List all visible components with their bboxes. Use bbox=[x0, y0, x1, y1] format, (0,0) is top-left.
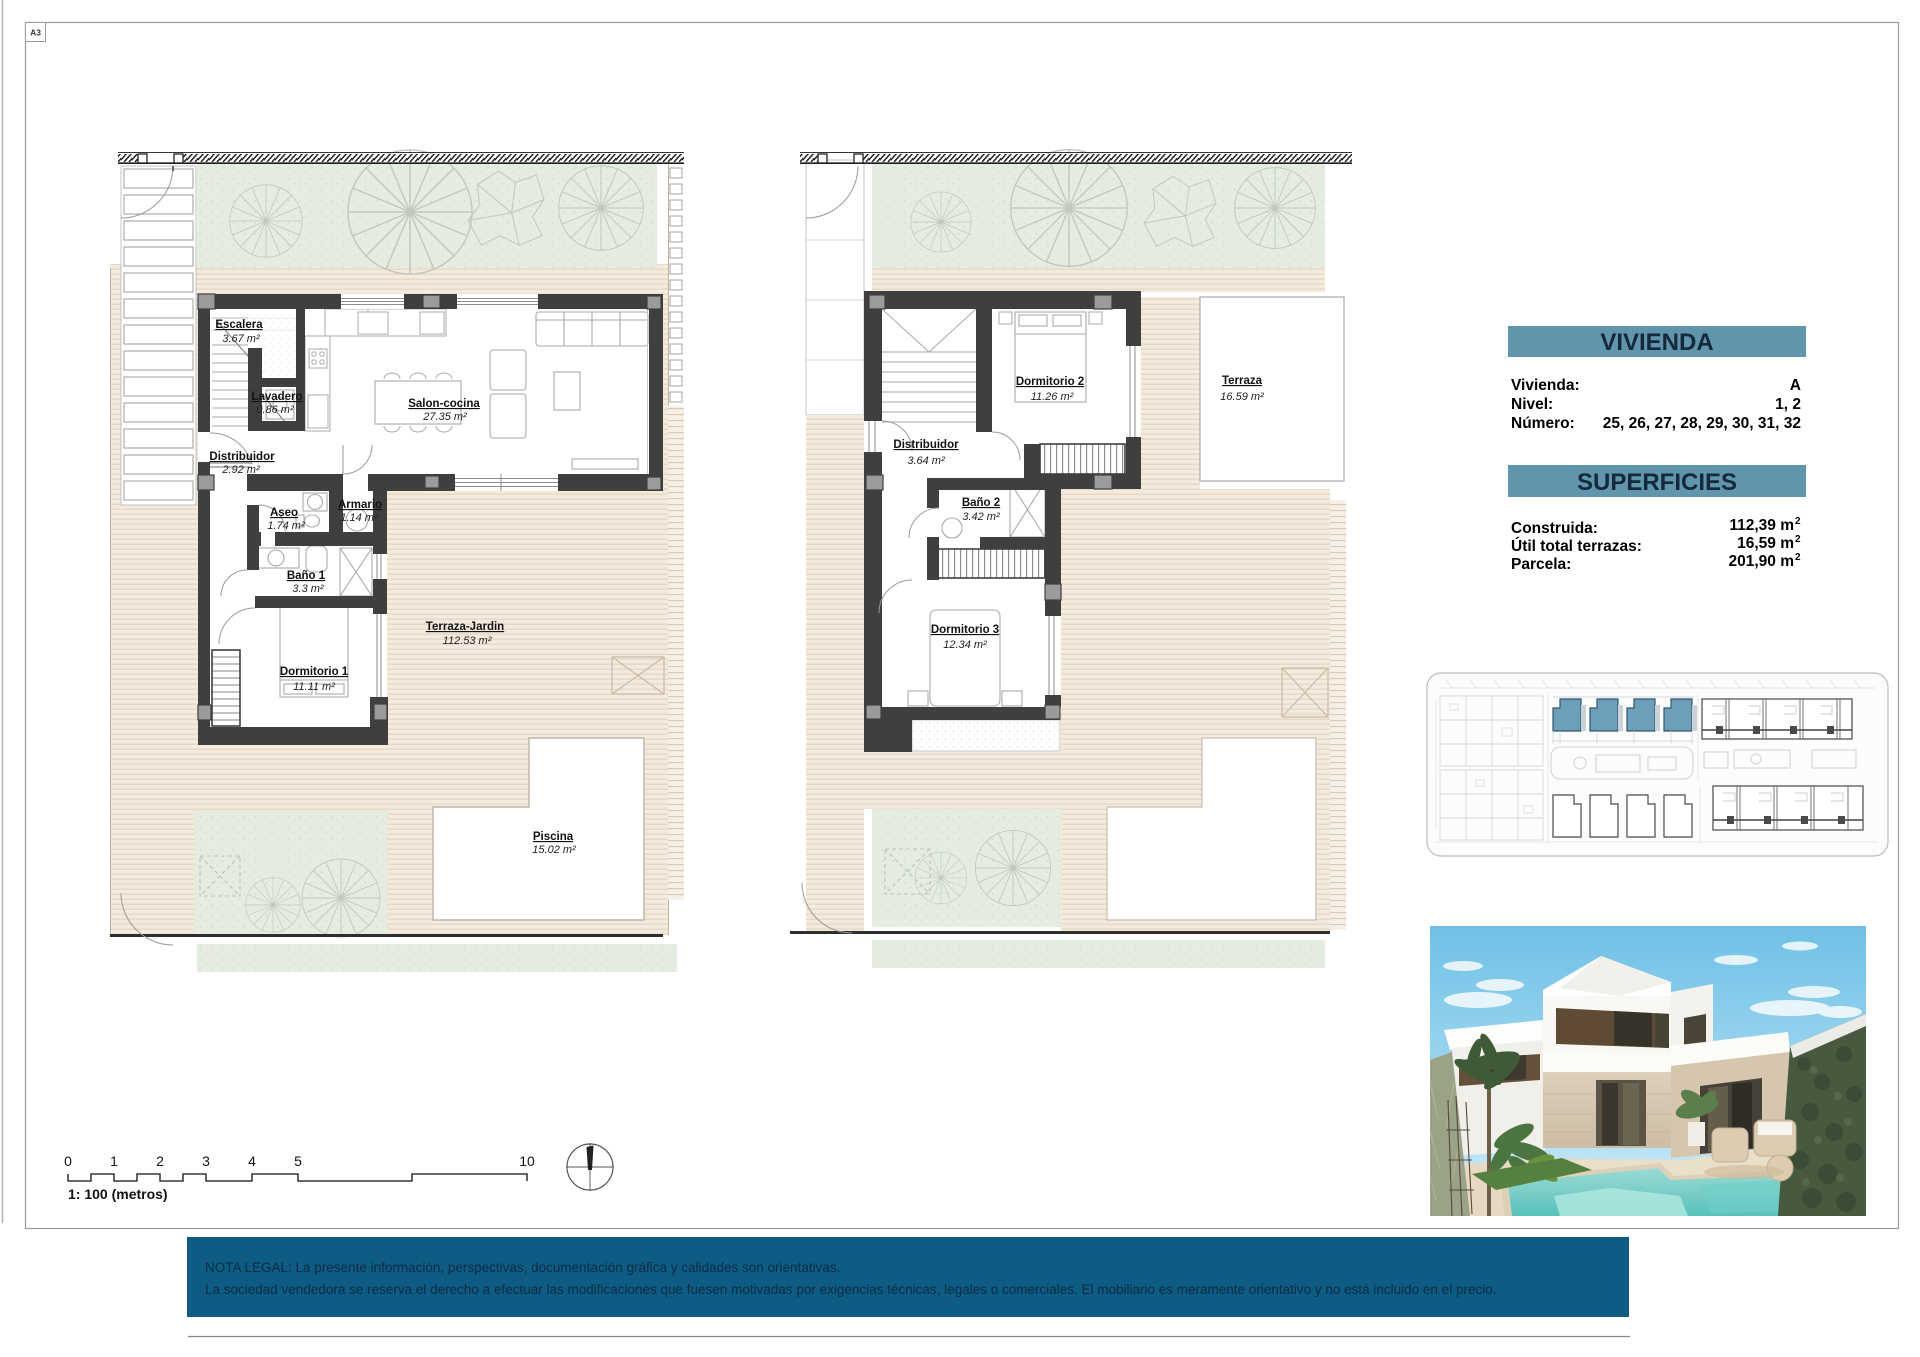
svg-text:11.26 m²: 11.26 m² bbox=[1031, 391, 1074, 403]
svg-text:Útil total terrazas:: Útil total terrazas: bbox=[1511, 537, 1642, 555]
svg-text:1.14 m²: 1.14 m² bbox=[340, 512, 378, 524]
svg-text:3.42 m²: 3.42 m² bbox=[962, 511, 1000, 523]
svg-text:27.35 m²: 27.35 m² bbox=[422, 411, 467, 423]
svg-text:Parcela:: Parcela: bbox=[1511, 556, 1571, 573]
svg-text:Armario: Armario bbox=[338, 499, 382, 511]
svg-text:0: 0 bbox=[64, 1153, 72, 1169]
svg-text:Vivienda:: Vivienda: bbox=[1511, 377, 1580, 394]
svg-text:10: 10 bbox=[519, 1153, 535, 1169]
svg-text:Piscina: Piscina bbox=[533, 831, 574, 843]
svg-text:201,90 m: 201,90 m bbox=[1729, 553, 1795, 570]
svg-text:La sociedad vendedora se reser: La sociedad vendedora se reserva el dere… bbox=[205, 1282, 1496, 1297]
svg-text:Nivel:: Nivel: bbox=[1511, 396, 1553, 413]
svg-text:3: 3 bbox=[202, 1153, 210, 1169]
svg-text:1, 2: 1, 2 bbox=[1775, 396, 1801, 413]
svg-text:Baño 1: Baño 1 bbox=[287, 570, 326, 582]
svg-text:A3: A3 bbox=[30, 28, 41, 38]
svg-text:Terraza-Jardin: Terraza-Jardin bbox=[426, 621, 504, 633]
svg-text:16.59 m²: 16.59 m² bbox=[1220, 391, 1264, 403]
svg-text:2: 2 bbox=[156, 1153, 164, 1169]
svg-text:Baño 2: Baño 2 bbox=[962, 497, 1000, 509]
svg-text:Escalera: Escalera bbox=[215, 319, 263, 331]
svg-text:Dormitorio 1: Dormitorio 1 bbox=[280, 666, 349, 678]
svg-text:VIVIENDA: VIVIENDA bbox=[1600, 329, 1713, 356]
svg-text:16,59 m: 16,59 m bbox=[1737, 535, 1794, 552]
svg-text:1: 1 bbox=[110, 1153, 118, 1169]
svg-text:Número:: Número: bbox=[1511, 415, 1575, 432]
svg-text:0.86 m²: 0.86 m² bbox=[256, 404, 294, 416]
svg-text:NOTA LEGAL: La presente inform: NOTA LEGAL: La presente información, per… bbox=[205, 1260, 840, 1275]
svg-text:3.67 m²: 3.67 m² bbox=[222, 333, 260, 345]
svg-text:112.53 m²: 112.53 m² bbox=[443, 635, 492, 647]
svg-text:Dormitorio 3: Dormitorio 3 bbox=[931, 624, 999, 636]
svg-text:A: A bbox=[1790, 377, 1801, 394]
svg-text:Aseo: Aseo bbox=[270, 507, 298, 519]
svg-text:112,39 m: 112,39 m bbox=[1729, 517, 1794, 534]
svg-text:3.64 m²: 3.64 m² bbox=[907, 455, 945, 467]
svg-text:1.74 m²: 1.74 m² bbox=[267, 520, 305, 532]
svg-text:2: 2 bbox=[1795, 516, 1801, 527]
svg-text:12.34 m²: 12.34 m² bbox=[943, 639, 987, 651]
svg-text:4: 4 bbox=[248, 1153, 256, 1169]
svg-text:5: 5 bbox=[294, 1153, 302, 1169]
svg-text:Distribuidor: Distribuidor bbox=[209, 451, 275, 463]
svg-text:2: 2 bbox=[1795, 552, 1801, 563]
svg-text:Terraza: Terraza bbox=[1222, 375, 1263, 387]
svg-text:2.92 m²: 2.92 m² bbox=[221, 464, 260, 476]
svg-text:Salon-cocina: Salon-cocina bbox=[408, 398, 480, 410]
svg-text:Lavadero: Lavadero bbox=[251, 391, 302, 403]
svg-text:15.02 m²: 15.02 m² bbox=[532, 844, 576, 856]
svg-text:25, 26, 27, 28, 29, 30, 31, 3: 25, 26, 27, 28, 29, 30, 31, 32 bbox=[1603, 415, 1801, 432]
svg-text:Dormitorio 2: Dormitorio 2 bbox=[1016, 376, 1084, 388]
svg-text:1: 100 (metros): 1: 100 (metros) bbox=[68, 1186, 168, 1202]
svg-text:Construida:: Construida: bbox=[1511, 520, 1598, 537]
svg-text:2: 2 bbox=[1795, 534, 1801, 545]
svg-text:SUPERFICIES: SUPERFICIES bbox=[1577, 469, 1737, 496]
svg-text:3.3 m²: 3.3 m² bbox=[292, 583, 324, 595]
svg-text:11.11 m²: 11.11 m² bbox=[293, 681, 335, 693]
svg-text:Distribuidor: Distribuidor bbox=[893, 439, 959, 451]
